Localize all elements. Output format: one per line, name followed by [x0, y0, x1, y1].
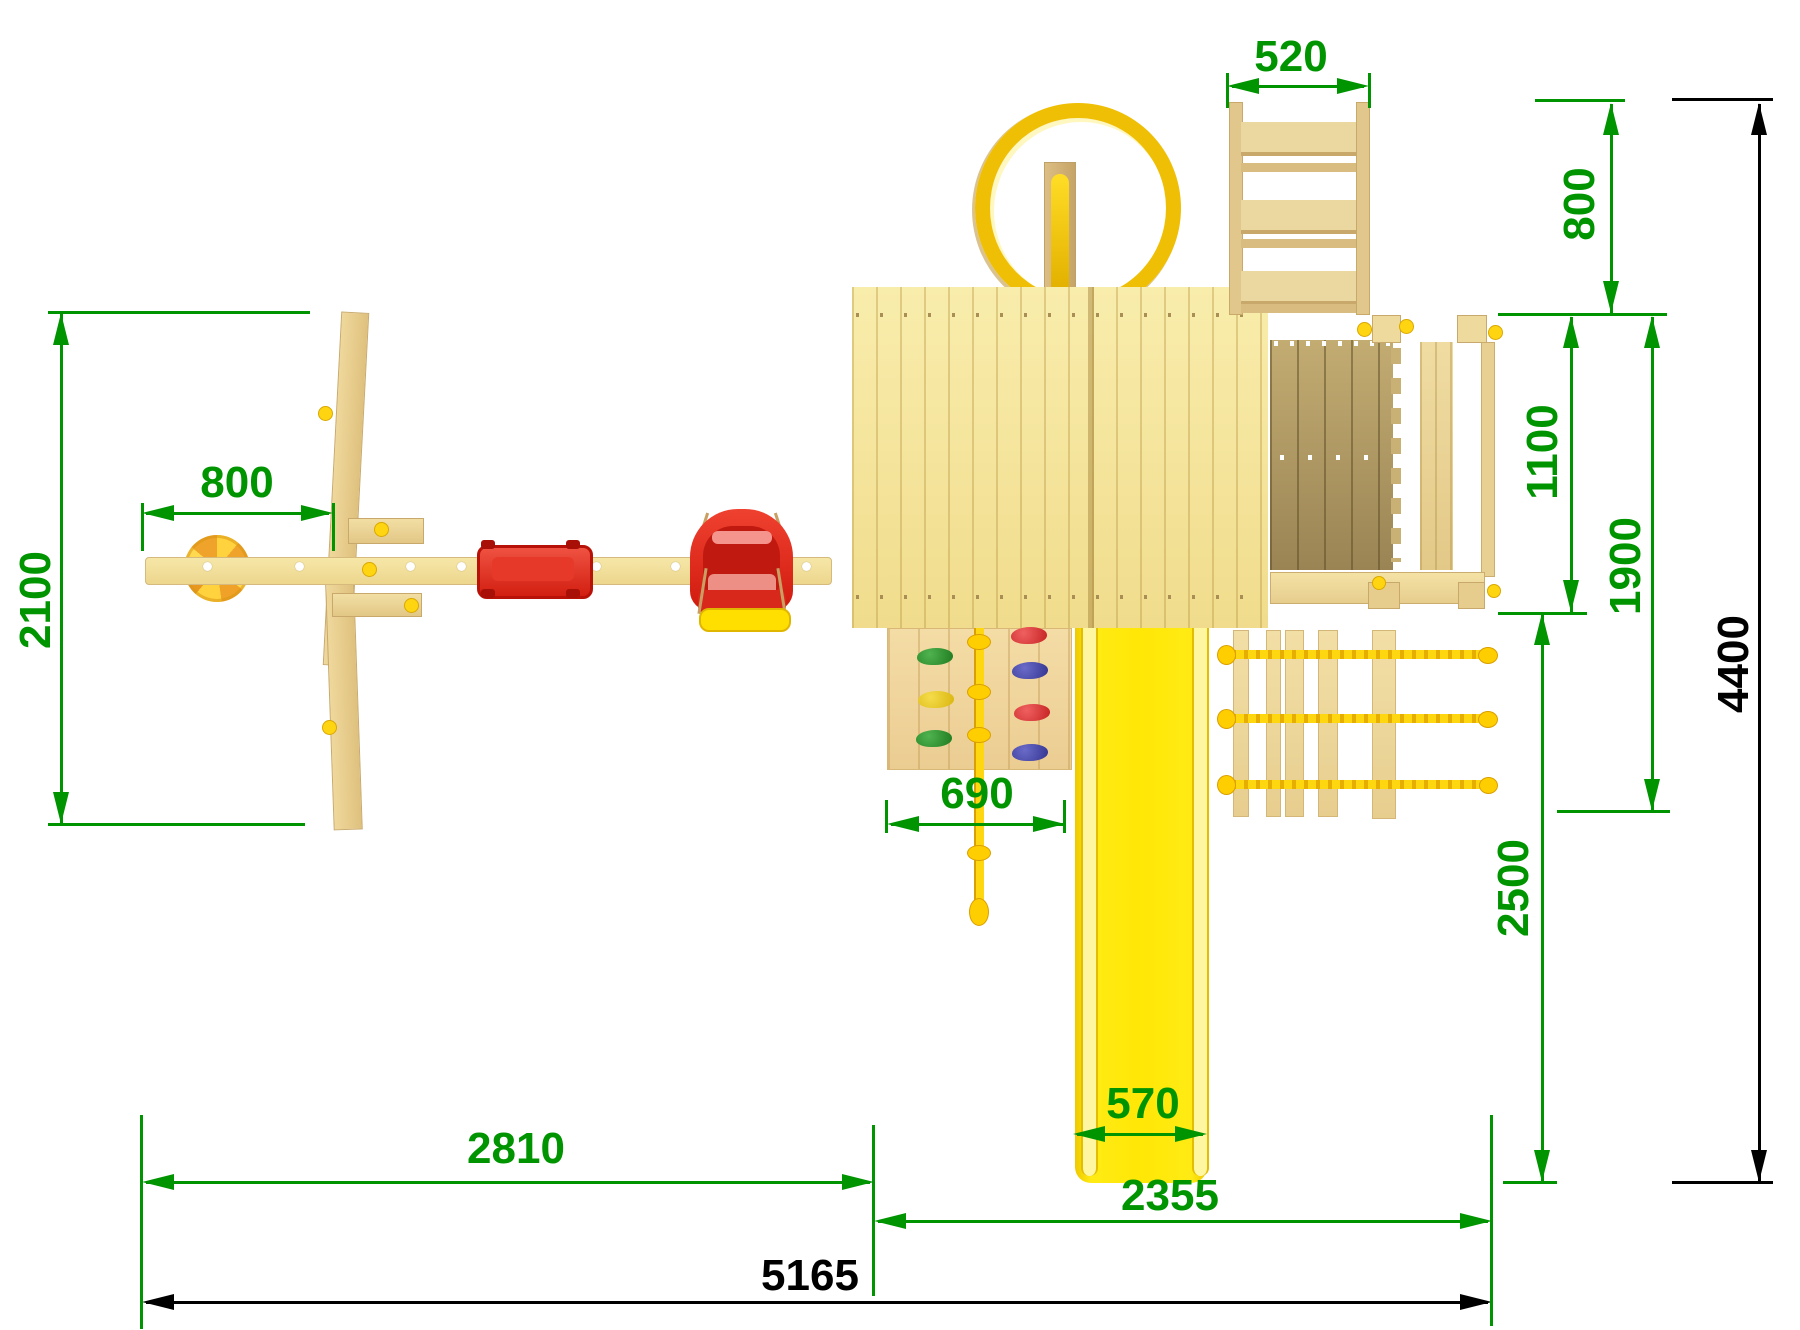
- tower-roof-seam: [1088, 287, 1094, 628]
- arrow-right: [1175, 1126, 1207, 1142]
- arrow-right: [842, 1174, 874, 1190]
- deck-nail-row: [1280, 455, 1390, 460]
- ladder-panel: [1241, 200, 1356, 234]
- climbing-rope-knot: [967, 845, 991, 861]
- deck-bolt: [1487, 584, 1501, 598]
- arrow-right: [1460, 1213, 1492, 1229]
- beam-hole: [457, 562, 466, 571]
- ladder-panel: [1241, 122, 1356, 156]
- dim-line-2355: [878, 1220, 1488, 1223]
- ext-line: [140, 1115, 143, 1329]
- seat-mount: [566, 589, 580, 598]
- deck-bolt: [1357, 322, 1372, 337]
- ext-line: [1490, 1115, 1493, 1326]
- arrow-down: [1751, 1150, 1767, 1182]
- climbing-hold-red: [1011, 627, 1047, 644]
- tower-roof: [852, 287, 1268, 628]
- deck-bolt: [1399, 319, 1414, 334]
- flat-swing-seat-panel: [492, 557, 574, 581]
- ref-line: [1672, 98, 1773, 101]
- climbing-rope-knot: [967, 727, 991, 743]
- beam-hole: [592, 562, 601, 571]
- beam-hole: [295, 562, 304, 571]
- bridge-rope: [1224, 714, 1494, 723]
- ext-line: [332, 503, 335, 551]
- deck-plank-tabs: [1391, 348, 1401, 562]
- arrow-up: [1644, 316, 1660, 348]
- beam-hole: [802, 562, 811, 571]
- ext-line: [141, 503, 144, 551]
- climbing-hold-blue: [1012, 744, 1048, 761]
- ref-line: [1535, 99, 1625, 102]
- seat-mount: [481, 540, 495, 549]
- arrow-up: [1751, 103, 1767, 135]
- dim-label-520: 520: [1254, 35, 1327, 79]
- slide-rail-left: [1081, 628, 1098, 1176]
- ref-line: [48, 823, 305, 826]
- deck-rail-plank: [1420, 342, 1453, 570]
- arrow-left: [1227, 78, 1259, 94]
- dim-label-5165: 5165: [761, 1254, 859, 1298]
- seat-mount: [481, 589, 495, 598]
- arrow-left: [142, 505, 174, 521]
- dim-label-2500: 2500: [1492, 839, 1536, 937]
- arrow-right: [301, 505, 333, 521]
- ref-line: [1498, 313, 1667, 316]
- dim-line-4400: [1758, 104, 1761, 1182]
- ext-line: [885, 800, 888, 833]
- playground-plan-drawing: 520 800 1100 1900 2500 4400 2100 800 690: [0, 0, 1800, 1330]
- ladder-panel: [1241, 271, 1356, 305]
- ext-line: [872, 1125, 875, 1296]
- ladder-rail-right: [1356, 102, 1370, 315]
- ext-line: [1063, 800, 1066, 833]
- arrow-left: [887, 816, 919, 832]
- deck-bolt: [1488, 325, 1503, 340]
- arrow-down: [1563, 580, 1579, 612]
- dim-line-2500: [1541, 614, 1544, 1182]
- arrow-up: [53, 313, 69, 345]
- deck-edge-strip: [1481, 342, 1495, 577]
- arrow-up: [1563, 316, 1579, 348]
- a-frame-bolt: [374, 522, 389, 537]
- bridge-rope: [1224, 650, 1494, 659]
- dim-label-2100: 2100: [14, 551, 58, 649]
- climbing-hold-green: [917, 648, 953, 665]
- ext-line: [1368, 73, 1371, 108]
- arrow-down: [1603, 281, 1619, 313]
- dim-line-1900: [1651, 317, 1654, 811]
- bridge-rope: [1224, 780, 1494, 789]
- a-frame-bolt: [318, 406, 333, 421]
- rope-knot: [1217, 645, 1236, 665]
- ref-line: [1498, 612, 1587, 615]
- ladder-rung: [1241, 304, 1356, 313]
- climbing-hold-green: [916, 730, 952, 747]
- dim-label-2810: 2810: [467, 1127, 565, 1171]
- tower-roof-nail-row: [856, 313, 1264, 317]
- climbing-hold-yellow: [918, 691, 954, 708]
- rope-knot: [1479, 777, 1498, 794]
- deck-post: [1457, 315, 1487, 343]
- ref-line: [1503, 1181, 1557, 1184]
- dim-label-2355: 2355: [1121, 1174, 1219, 1218]
- dim-label-570: 570: [1106, 1082, 1179, 1126]
- dim-label-690: 690: [940, 772, 1013, 816]
- baby-seat-pad-top: [712, 531, 772, 544]
- arrow-down: [1644, 779, 1660, 811]
- arrow-left: [1073, 1126, 1105, 1142]
- deck-bolt: [1372, 576, 1386, 590]
- ladder-rung: [1241, 163, 1356, 172]
- climbing-rope-knot: [967, 634, 991, 650]
- seat-mount: [566, 540, 580, 549]
- ref-line: [1672, 1181, 1773, 1184]
- rope-knot: [1478, 647, 1498, 664]
- arrow-up: [1603, 103, 1619, 135]
- dim-label-800-right: 800: [1558, 167, 1602, 240]
- beam-hole: [406, 562, 415, 571]
- ref-line: [48, 311, 310, 314]
- arrow-up: [1534, 613, 1550, 645]
- dim-line-2810: [146, 1181, 870, 1184]
- deck-post: [1372, 315, 1401, 343]
- dim-line-2100: [60, 314, 63, 824]
- ladder-rung: [1241, 239, 1356, 248]
- dim-label-1900: 1900: [1604, 517, 1648, 615]
- tower-roof-nail-row: [856, 595, 1264, 599]
- climbing-hold-red: [1014, 704, 1050, 721]
- dim-label-1100: 1100: [1521, 404, 1565, 499]
- dim-line-5165: [146, 1301, 1488, 1304]
- beam-hole: [671, 562, 680, 571]
- climbing-rope-end: [969, 898, 989, 926]
- a-frame-bolt: [322, 720, 337, 735]
- slide-rail-right: [1192, 628, 1209, 1176]
- arrow-left: [142, 1294, 174, 1310]
- dim-label-800-left: 800: [200, 461, 273, 505]
- beam-hole: [203, 562, 212, 571]
- steering-wheel-ring: [975, 103, 1181, 313]
- baby-seat-bumper-bar: [699, 608, 791, 632]
- climbing-hold-blue: [1012, 662, 1048, 679]
- dim-label-4400: 4400: [1712, 615, 1756, 713]
- ext-line: [1226, 73, 1229, 108]
- dim-line-1100: [1570, 317, 1573, 612]
- rope-knot: [1478, 711, 1498, 728]
- ref-line: [1557, 810, 1670, 813]
- rope-knot: [1217, 709, 1236, 729]
- arrow-down: [1534, 1150, 1550, 1182]
- arrow-right: [1033, 816, 1065, 832]
- arrow-left: [874, 1213, 906, 1229]
- beam-bolt: [362, 562, 377, 577]
- deck-bottom-block: [1458, 582, 1485, 609]
- arrow-right: [1337, 78, 1369, 94]
- arrow-right: [1460, 1294, 1492, 1310]
- arrow-left: [142, 1174, 174, 1190]
- a-frame-bolt: [404, 598, 419, 613]
- arrow-down: [53, 792, 69, 824]
- climbing-rope-knot: [967, 684, 991, 700]
- rope-knot: [1217, 775, 1236, 795]
